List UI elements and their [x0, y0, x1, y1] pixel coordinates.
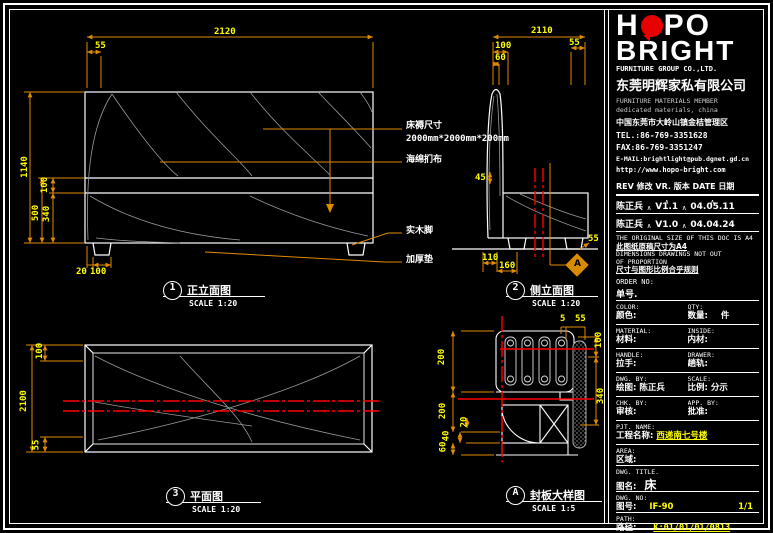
- inside-label-en: INSIDE:: [688, 327, 760, 335]
- dim-detail-top-b: 55: [575, 314, 586, 324]
- dim-side-top-a: 100: [495, 41, 511, 51]
- area-label-cn: 区域:: [616, 455, 636, 465]
- path-label-en: PATH:: [616, 515, 759, 523]
- dim-side-post: 45: [475, 173, 486, 183]
- dim-side-top-b: 60: [495, 53, 506, 63]
- logo-wordmark: BRIGHT: [616, 39, 759, 63]
- revision-caret-icon: ∧: [647, 204, 651, 212]
- view-number-plan: 3: [166, 487, 185, 506]
- annotation-mattress-size-value: 2000mm*2000mm*200mm: [406, 134, 509, 145]
- revision-date: 04.04.24: [690, 220, 734, 230]
- area-label-en: AREA:: [616, 447, 759, 455]
- drawer-label-cn: 趟轨:: [688, 359, 708, 369]
- project-label-en: PJT. NAME:: [616, 423, 759, 431]
- dwg-title-label-cn: 图名:: [616, 482, 636, 491]
- company-address: 中国东莞市大岭山镇金桔管理区: [616, 117, 759, 128]
- dim-front-width: 2120: [214, 27, 236, 37]
- titleblock-row-path: PATH: 路径: K:01/01/01/0813: [616, 512, 759, 533]
- company-fax: FAX:86-769-3351247: [616, 143, 759, 152]
- drawing-notes: THE ORIGINAL SIZE OF THIS DOC IS A4 此图纸原…: [616, 235, 759, 275]
- order-no-label-en: ORDER NO:: [616, 278, 759, 286]
- dim-front-leg-inset: 20: [76, 267, 87, 277]
- dwgby-value: 陈正兵: [639, 383, 665, 393]
- revision-caret-icon: ∧: [665, 198, 669, 206]
- dwg-title-value: 床: [644, 478, 656, 491]
- dim-detail-right-b: 340: [596, 386, 606, 406]
- view-scale-side: SCALE 1:20: [532, 299, 580, 308]
- material-label-en: MATERIAL:: [616, 327, 688, 335]
- dwgby-label-cn: 绘图:: [616, 383, 636, 393]
- revision-caret-icon: ∧: [647, 222, 651, 230]
- company-tel: TEL.:86-769-3351628: [616, 131, 759, 140]
- qty-unit: 件: [721, 311, 730, 321]
- view-number-detail: A: [506, 486, 525, 505]
- company-name-cn: 东莞明辉家私有限公司: [616, 75, 759, 94]
- company-desc-2: dedicated materials, china: [616, 106, 759, 114]
- color-label-en: COLOR:: [616, 303, 688, 311]
- dim-detail-top-a: 5: [560, 314, 565, 324]
- dim-side-length: 2110: [531, 26, 553, 36]
- view-title-side: 侧立面图: [530, 282, 574, 298]
- titleblock-row-chk-app: CHK. BY: 审核: APP. BY: 批准:: [616, 396, 759, 420]
- scale-value: 分示: [711, 383, 728, 393]
- dim-detail-left-a: 200: [437, 347, 447, 367]
- material-label-cn: 材料:: [616, 335, 636, 345]
- appby-label-cn: 批准:: [688, 407, 708, 417]
- dim-side-leg-a: 110: [482, 253, 498, 263]
- titleblock-row-project: PJT. NAME: 工程名称: 西递南七号楼: [616, 420, 759, 444]
- title-block: HPO BRIGHT FURNITURE GROUP CO.,LTD. 东莞明辉…: [608, 10, 763, 523]
- view-number-front: 1: [163, 281, 182, 300]
- revision-by: 陈正兵: [616, 199, 643, 212]
- annotation-sponge-fabric: 海绵扪布: [406, 155, 442, 166]
- titleblock-row-area: AREA: 区域:: [616, 444, 759, 465]
- dim-front-offset: 55: [95, 41, 106, 51]
- company-web: http://www.hopo-bright.com: [616, 166, 759, 174]
- dim-detail-left-b: 200: [438, 401, 448, 421]
- dwgby-label-en: DWG. BY:: [616, 375, 688, 383]
- chkby-label-en: CHK. BY:: [616, 399, 688, 407]
- path-label-cn: 路径:: [616, 523, 636, 533]
- chkby-label-cn: 审核:: [616, 407, 636, 417]
- revision-row: 陈正兵 ∧ V1.1 ∧ 04.05.11: [616, 196, 759, 214]
- dwg-no-value: IF-90: [649, 502, 673, 512]
- company-desc-1: FURNITURE MATERIALS MEMBER: [616, 97, 759, 105]
- handle-label-en: HANDLE:: [616, 351, 688, 359]
- annotation-wood-leg: 实木脚: [406, 226, 433, 237]
- dim-detail-right-a: 100: [594, 330, 604, 350]
- titleblock-row-material-inside: MATERIAL: 材料: INSIDE: 内材:: [616, 324, 759, 348]
- qty-label-en: QTY:: [688, 303, 760, 311]
- dwg-title-label-en: DWG. TITLE.: [616, 468, 759, 476]
- appby-label-en: APP. BY:: [688, 399, 760, 407]
- drawer-label-en: DRAWER:: [688, 351, 760, 359]
- color-label-cn: 颜色:: [616, 311, 636, 321]
- order-no-label-cn: 单号.: [616, 287, 759, 300]
- view-title-detail: 封板大样图: [530, 487, 585, 503]
- revision-by: 陈正兵: [616, 217, 643, 230]
- note-proportion-cn: 尺寸与图形比例合乎规则: [616, 266, 759, 275]
- dim-plan-top: 100: [35, 341, 45, 361]
- dim-plan-bottom: 55: [32, 439, 42, 452]
- dim-side-bottom-right: 55: [588, 234, 599, 244]
- scale-label-cn: 比例:: [688, 383, 708, 393]
- dim-side-top-right: 55: [569, 38, 580, 48]
- dwg-no-label-en: DWG. NO:: [616, 494, 759, 502]
- dim-front-leg-width: 100: [90, 267, 106, 277]
- annotation-pad: 加厚垫: [406, 255, 433, 266]
- view-scale-plan: SCALE 1:20: [192, 505, 240, 514]
- scale-label-en: SCALE:: [688, 375, 760, 383]
- project-label-cn: 工程名称:: [616, 431, 653, 441]
- cad-sheet: 2120 55 1140 100 500 340 20 100 2110 100…: [0, 0, 773, 533]
- qty-label-cn: 数量:: [688, 311, 708, 321]
- titleblock-row-dwgby-scale: DWG. BY: 绘图: 陈正兵 SCALE: 比例: 分示: [616, 372, 759, 396]
- titleblock-row-handle-drawer: HANDLE: 拉手: DRAWER: 趟轨:: [616, 348, 759, 372]
- revision-header: REV 修改 VR. 版本 DATE 日期: [616, 181, 759, 195]
- dim-detail-left-c: 20: [460, 416, 470, 429]
- dim-front-cushion: 340: [42, 204, 52, 224]
- dim-front-seam: 100: [40, 175, 50, 195]
- dim-front-lower: 500: [31, 203, 41, 223]
- logo-red-disc-icon: [641, 15, 663, 37]
- view-title-front: 正立面图: [187, 282, 231, 298]
- revision-separator: ∧ ∧: [616, 195, 759, 196]
- titleblock-row-dwg-title: DWG. TITLE. 图名:床: [616, 465, 759, 491]
- view-scale-detail: SCALE 1:5: [532, 504, 575, 513]
- revision-caret-icon: ∧: [710, 198, 714, 206]
- path-value: K:01/01/01/0813: [653, 523, 730, 533]
- dim-detail-left-e: 60: [439, 441, 449, 454]
- view-title-plan: 平面图: [190, 488, 223, 504]
- dwg-sheet-number: 1/1: [738, 502, 753, 512]
- titleblock-row-color-qty: COLOR: 颜色: QTY: 数量: 件: [616, 300, 759, 324]
- section-marker-a: A: [571, 259, 584, 269]
- handle-label-cn: 拉手:: [616, 359, 636, 369]
- revision-caret-icon: ∧: [682, 204, 686, 212]
- dwg-no-label-cn: 图号:: [616, 502, 636, 512]
- dim-side-leg-b: 160: [499, 261, 515, 271]
- titleblock-divider: [604, 10, 605, 523]
- revision-caret-icon: ∧: [682, 222, 686, 230]
- company-name-en: FURNITURE GROUP CO.,LTD.: [616, 65, 759, 73]
- revision-row: 陈正兵 ∧ V1.0 ∧ 04.04.24: [616, 214, 759, 232]
- project-name-value: 西递南七号楼: [656, 431, 707, 441]
- inside-label-cn: 内材:: [688, 335, 708, 345]
- company-email: E-MAIL:brightlight@pub.dgnet.gd.cn: [616, 155, 759, 163]
- view-scale-front: SCALE 1:20: [189, 299, 237, 308]
- annotation-mattress-size-label: 床褥尺寸: [406, 121, 442, 132]
- dim-plan-length: 2100: [19, 388, 29, 414]
- revision-version: V1.0: [655, 220, 678, 230]
- view-number-side: 2: [506, 281, 525, 300]
- dim-front-height: 1140: [20, 154, 30, 180]
- titleblock-row-dwg-no: DWG. NO: 图号: IF-90 1/1: [616, 491, 759, 512]
